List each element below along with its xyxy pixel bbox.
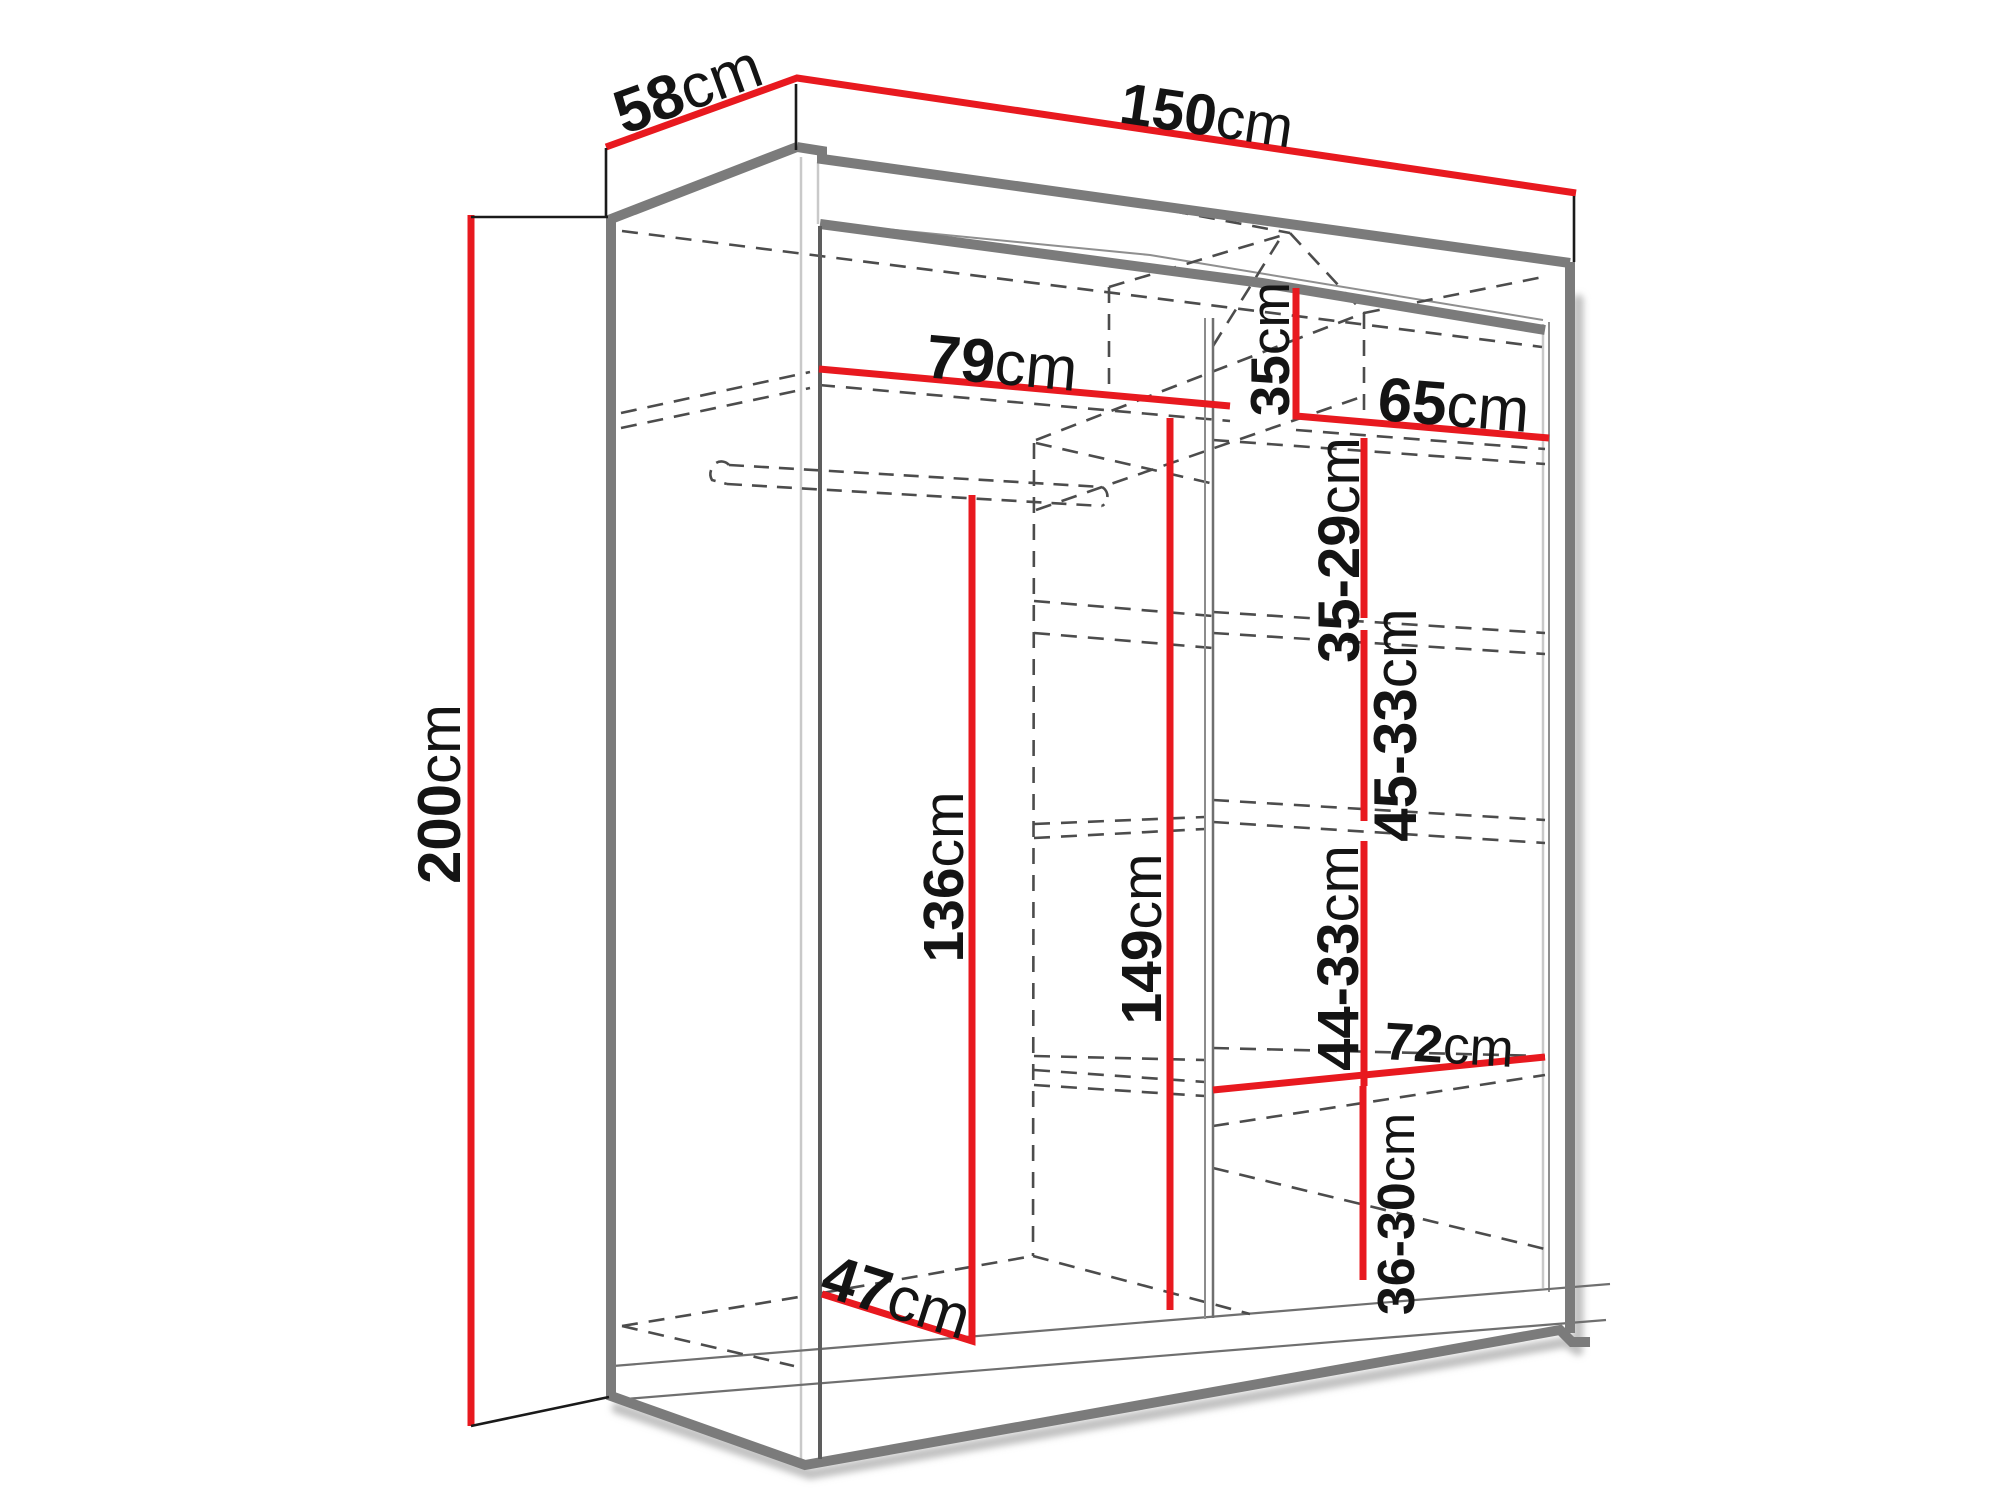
svg-text:136cm: 136cm [912,791,976,962]
svg-text:44-33cm: 44-33cm [1306,845,1371,1071]
svg-text:149cm: 149cm [1110,853,1174,1024]
svg-text:35cm: 35cm [1239,282,1301,417]
svg-text:200cm: 200cm [406,704,473,884]
svg-text:72cm: 72cm [1383,1012,1516,1079]
svg-text:65cm: 65cm [1375,365,1532,446]
svg-text:45-33cm: 45-33cm [1362,608,1429,841]
svg-text:36-30cm: 36-30cm [1368,1113,1426,1315]
svg-text:79cm: 79cm [923,322,1080,404]
